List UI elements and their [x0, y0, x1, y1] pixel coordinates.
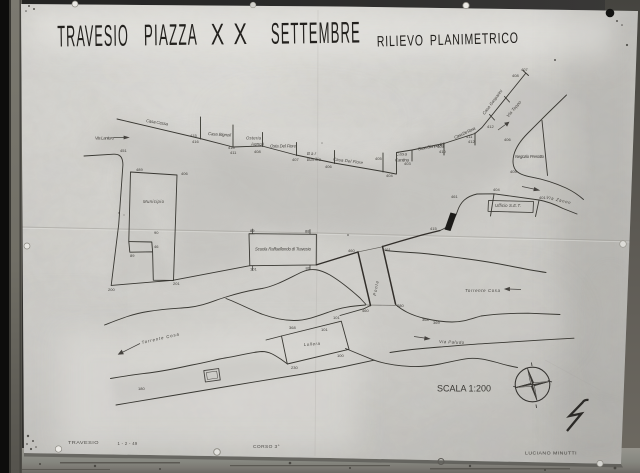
- svg-text:369: 369: [433, 320, 440, 325]
- svg-text:Negozio Presotto: Negozio Presotto: [515, 154, 545, 159]
- svg-text:Ufficio S.E.T.: Ufficio S.E.T.: [495, 203, 521, 208]
- svg-text:407: 407: [292, 157, 299, 162]
- svg-text:368: 368: [422, 317, 429, 322]
- svg-text:412: 412: [487, 124, 494, 129]
- svg-text:101: 101: [321, 327, 328, 332]
- svg-text:460: 460: [348, 248, 355, 253]
- svg-text:404: 404: [493, 187, 500, 192]
- svg-text:406: 406: [504, 137, 511, 142]
- svg-text:410: 410: [439, 149, 446, 154]
- svg-text:TRAVESIO: TRAVESIO: [57, 20, 129, 54]
- svg-text:46: 46: [154, 244, 159, 249]
- svg-text:406: 406: [181, 171, 188, 176]
- svg-text:405: 405: [375, 156, 382, 161]
- svg-text:406: 406: [325, 164, 332, 169]
- svg-text:280: 280: [397, 303, 404, 308]
- svg-text:CORSO 3°: CORSO 3°: [253, 444, 280, 450]
- svg-text:101: 101: [250, 267, 257, 272]
- svg-text:Municipio: Municipio: [143, 199, 165, 204]
- svg-text:PLANIMETRICO: PLANIMETRICO: [430, 30, 519, 49]
- svg-text:Scuola Raffaellondo di Travesi: Scuola Raffaellondo di Travesio: [255, 247, 312, 252]
- svg-text:460: 460: [362, 308, 369, 313]
- svg-text:TRAVESIO: TRAVESIO: [68, 440, 99, 446]
- svg-text:408: 408: [512, 73, 519, 78]
- svg-text:405: 405: [510, 169, 517, 174]
- svg-text:LUCIANO MINUTTI: LUCIANO MINUTTI: [525, 451, 577, 456]
- svg-text:408: 408: [254, 149, 261, 154]
- svg-text:Osteria: Osteria: [246, 136, 262, 141]
- svg-text:90: 90: [154, 230, 159, 235]
- svg-text:SETTEMBRE: SETTEMBRE: [271, 17, 361, 51]
- svg-text:403: 403: [404, 161, 411, 166]
- svg-text:401: 401: [539, 195, 546, 200]
- svg-text:1 - 2 - 49: 1 - 2 - 49: [118, 441, 138, 447]
- svg-text:180: 180: [138, 386, 145, 391]
- svg-text:Osta Del Fiore: Osta Del Fiore: [270, 144, 297, 149]
- svg-text:PIAZZA: PIAZZA: [144, 19, 198, 53]
- svg-text:200: 200: [108, 287, 115, 292]
- svg-text:412: 412: [468, 139, 475, 144]
- svg-text:415: 415: [190, 133, 197, 138]
- svg-text:Barilla: Barilla: [307, 157, 322, 162]
- svg-text:415: 415: [430, 226, 437, 231]
- svg-text:RILIEVO: RILIEVO: [377, 32, 424, 50]
- svg-text:489: 489: [136, 167, 143, 172]
- svg-text:89: 89: [130, 253, 135, 258]
- svg-text:80: 80: [306, 266, 311, 271]
- svg-text:230: 230: [291, 365, 298, 370]
- svg-text:88: 88: [305, 229, 310, 234]
- svg-text:Agnoli: Agnoli: [250, 142, 265, 147]
- svg-text:SCALA 1:200: SCALA 1:200: [437, 384, 491, 395]
- svg-text:100: 100: [337, 353, 344, 358]
- svg-text:201: 201: [173, 281, 180, 286]
- svg-text:Via Lantero: Via Lantero: [95, 136, 115, 141]
- svg-text:101: 101: [333, 315, 340, 320]
- svg-text:368: 368: [289, 325, 296, 330]
- svg-text:416: 416: [192, 139, 199, 144]
- svg-text:411: 411: [230, 150, 237, 155]
- svg-text:Torrente Cosa: Torrente Cosa: [465, 288, 501, 293]
- svg-text:X X: X X: [211, 18, 249, 51]
- svg-text:451: 451: [120, 148, 127, 153]
- svg-text:Via Paludo: Via Paludo: [439, 339, 465, 345]
- svg-text:Bar: Bar: [307, 151, 317, 156]
- svg-text:404: 404: [386, 173, 393, 178]
- svg-text:461: 461: [384, 247, 391, 252]
- svg-text:Casa: Casa: [396, 152, 408, 157]
- svg-text:461: 461: [451, 194, 458, 199]
- svg-text:407: 407: [521, 67, 528, 72]
- svg-text:89: 89: [250, 228, 255, 233]
